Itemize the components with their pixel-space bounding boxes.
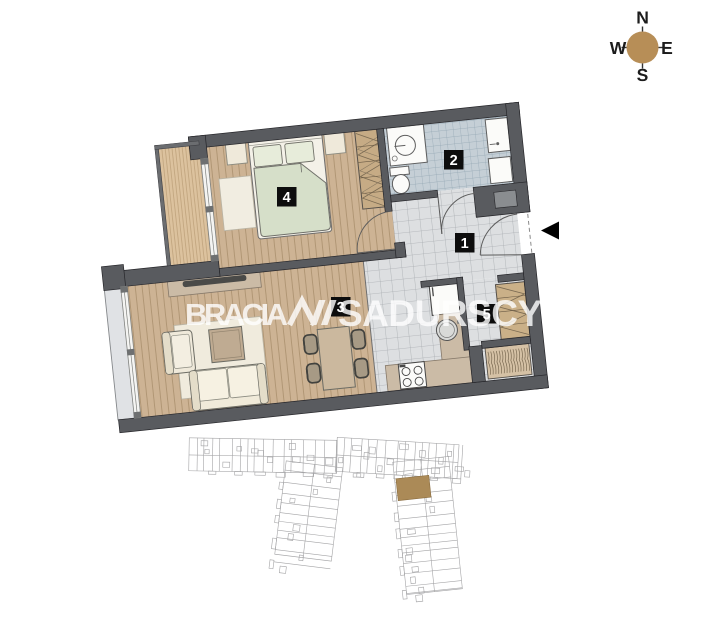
svg-text:SADURSCY: SADURSCY xyxy=(338,293,542,334)
svg-text:W: W xyxy=(610,38,627,58)
svg-text:1: 1 xyxy=(461,236,469,252)
svg-text:E: E xyxy=(661,38,673,58)
svg-text:S: S xyxy=(637,65,649,85)
svg-text:BRACIA: BRACIA xyxy=(185,297,288,332)
svg-text:4: 4 xyxy=(283,190,291,206)
svg-text:2: 2 xyxy=(450,153,458,169)
svg-text:N: N xyxy=(636,7,649,27)
